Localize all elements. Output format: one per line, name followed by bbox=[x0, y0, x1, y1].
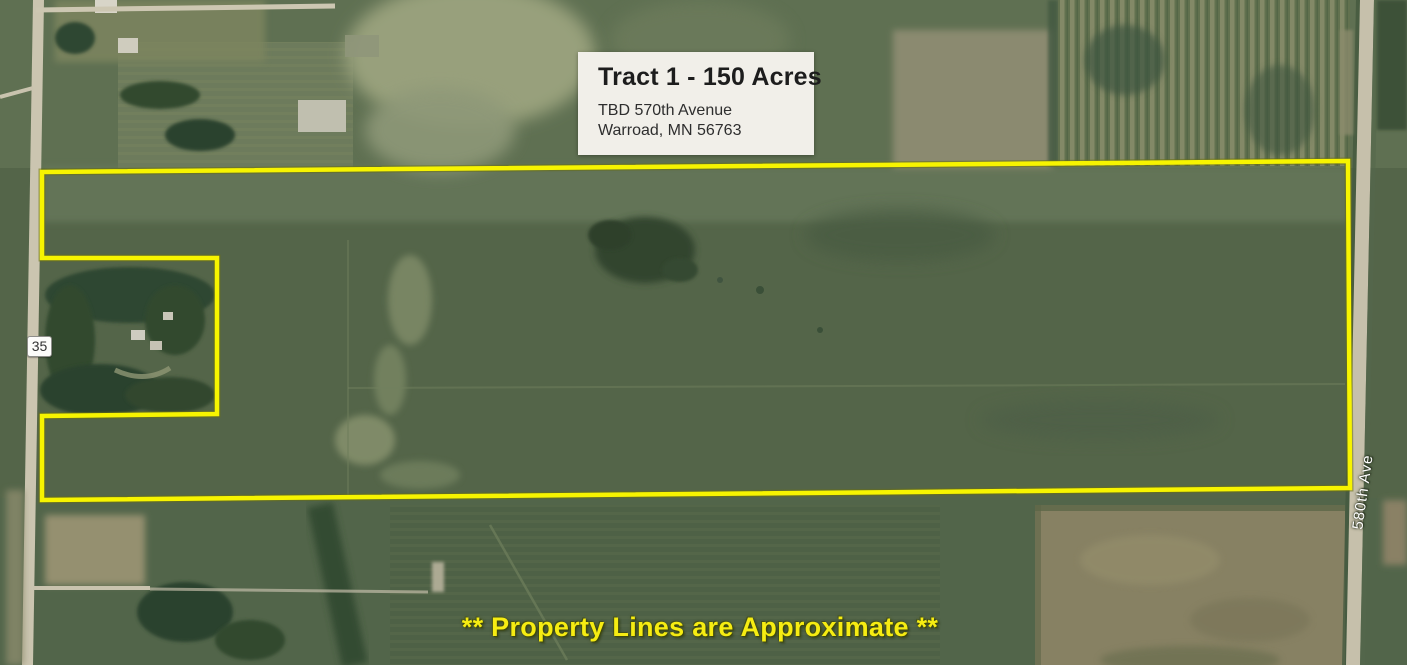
tract-address-line2: Warroad, MN 56763 bbox=[598, 121, 798, 141]
aerial-map: Tract 1 - 150 Acres TBD 570th Avenue War… bbox=[0, 0, 1407, 665]
route-35-marker: 35 bbox=[27, 336, 52, 357]
property-lines-disclaimer: ** Property Lines are Approximate ** bbox=[462, 612, 938, 643]
tract-info-card: Tract 1 - 150 Acres TBD 570th Avenue War… bbox=[578, 52, 814, 155]
tract-address-line1: TBD 570th Avenue bbox=[598, 101, 798, 121]
tract-title: Tract 1 - 150 Acres bbox=[598, 63, 798, 92]
